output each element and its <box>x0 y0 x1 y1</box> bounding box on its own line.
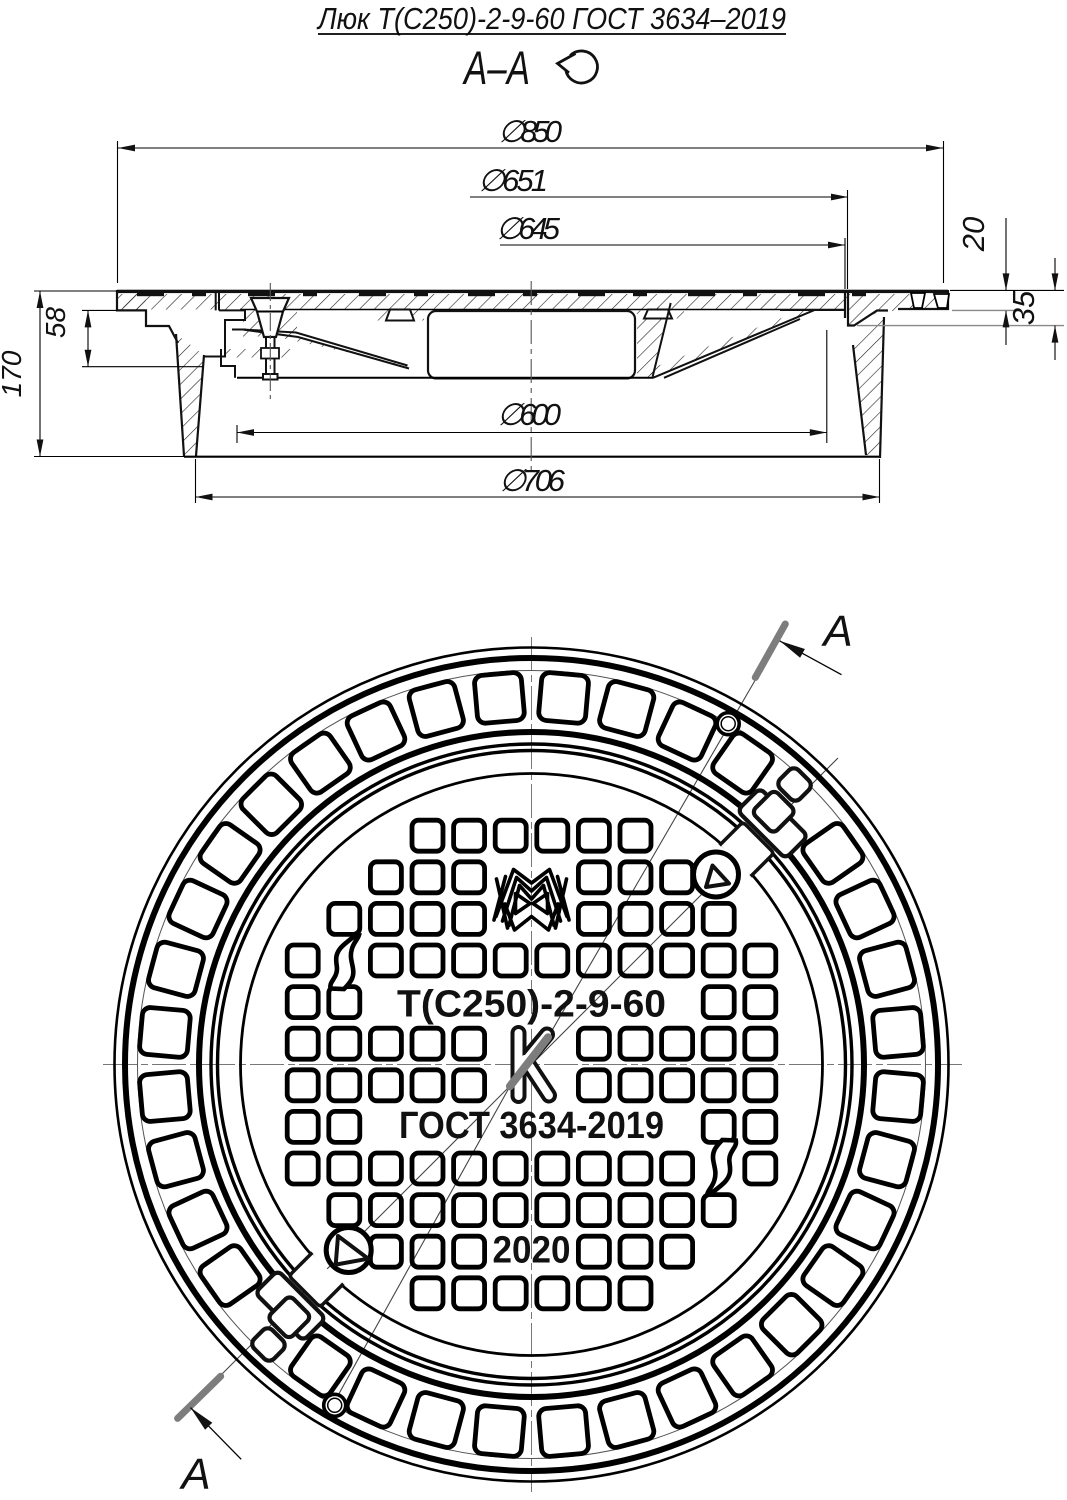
svg-text:А: А <box>820 607 852 656</box>
svg-text:∅600: ∅600 <box>497 397 561 432</box>
svg-text:35: 35 <box>1006 290 1041 325</box>
svg-text:А–А: А–А <box>462 41 530 94</box>
svg-text:Т(С250)-2-9-60: Т(С250)-2-9-60 <box>397 984 666 1026</box>
svg-text:2020: 2020 <box>493 1230 571 1272</box>
svg-text:20: 20 <box>956 217 991 252</box>
svg-text:∅651: ∅651 <box>478 163 548 198</box>
svg-text:А: А <box>178 1450 210 1499</box>
svg-text:∅645: ∅645 <box>496 211 561 246</box>
svg-text:∅850: ∅850 <box>498 114 562 149</box>
svg-text:ГОСТ 3634-2019: ГОСТ 3634-2019 <box>399 1105 664 1147</box>
svg-text:∅706: ∅706 <box>499 463 566 498</box>
svg-text:170: 170 <box>0 350 27 397</box>
svg-text:58: 58 <box>40 307 71 339</box>
svg-text:Люк Т(С250)-2-9-60 ГОСТ 3634–: Люк Т(С250)-2-9-60 ГОСТ 3634–2019 <box>316 1 786 36</box>
